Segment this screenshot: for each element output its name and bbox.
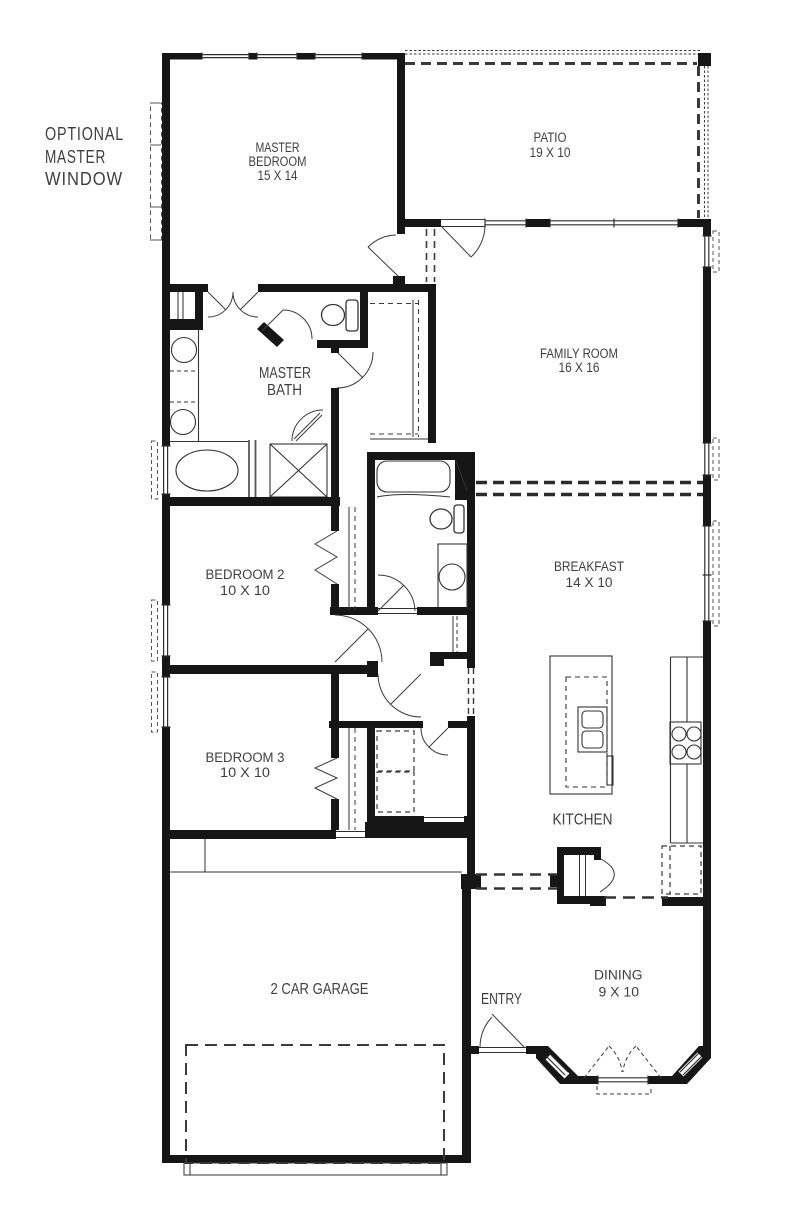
svg-text:WINDOW: WINDOW — [45, 168, 123, 189]
svg-text:ENTRY: ENTRY — [481, 991, 522, 1008]
svg-text:16 X 16: 16 X 16 — [559, 360, 600, 375]
svg-text:BEDROOM: BEDROOM — [249, 154, 307, 169]
svg-text:10 X 10: 10 X 10 — [220, 583, 270, 598]
svg-text:10 X 10: 10 X 10 — [220, 765, 270, 780]
svg-text:MASTER: MASTER — [45, 146, 106, 167]
svg-text:KITCHEN: KITCHEN — [553, 812, 613, 829]
svg-text:14 X 10: 14 X 10 — [566, 575, 613, 590]
svg-text:DINING: DINING — [594, 968, 643, 983]
svg-text:OPTIONAL: OPTIONAL — [45, 123, 124, 144]
svg-text:9 X 10: 9 X 10 — [599, 985, 640, 1000]
svg-text:BATH: BATH — [267, 382, 302, 399]
svg-text:MASTER: MASTER — [256, 140, 300, 155]
svg-text:15 X 14: 15 X 14 — [258, 168, 298, 183]
svg-text:19 X 10: 19 X 10 — [530, 145, 571, 160]
svg-text:PATIO: PATIO — [534, 130, 567, 145]
svg-text:2 CAR GARAGE: 2 CAR GARAGE — [271, 981, 369, 998]
svg-text:MASTER: MASTER — [259, 365, 311, 382]
svg-text:FAMILY ROOM: FAMILY ROOM — [540, 346, 618, 361]
svg-text:BREAKFAST: BREAKFAST — [554, 559, 624, 574]
svg-text:BEDROOM 2: BEDROOM 2 — [206, 567, 285, 582]
svg-text:BEDROOM 3: BEDROOM 3 — [206, 750, 285, 765]
